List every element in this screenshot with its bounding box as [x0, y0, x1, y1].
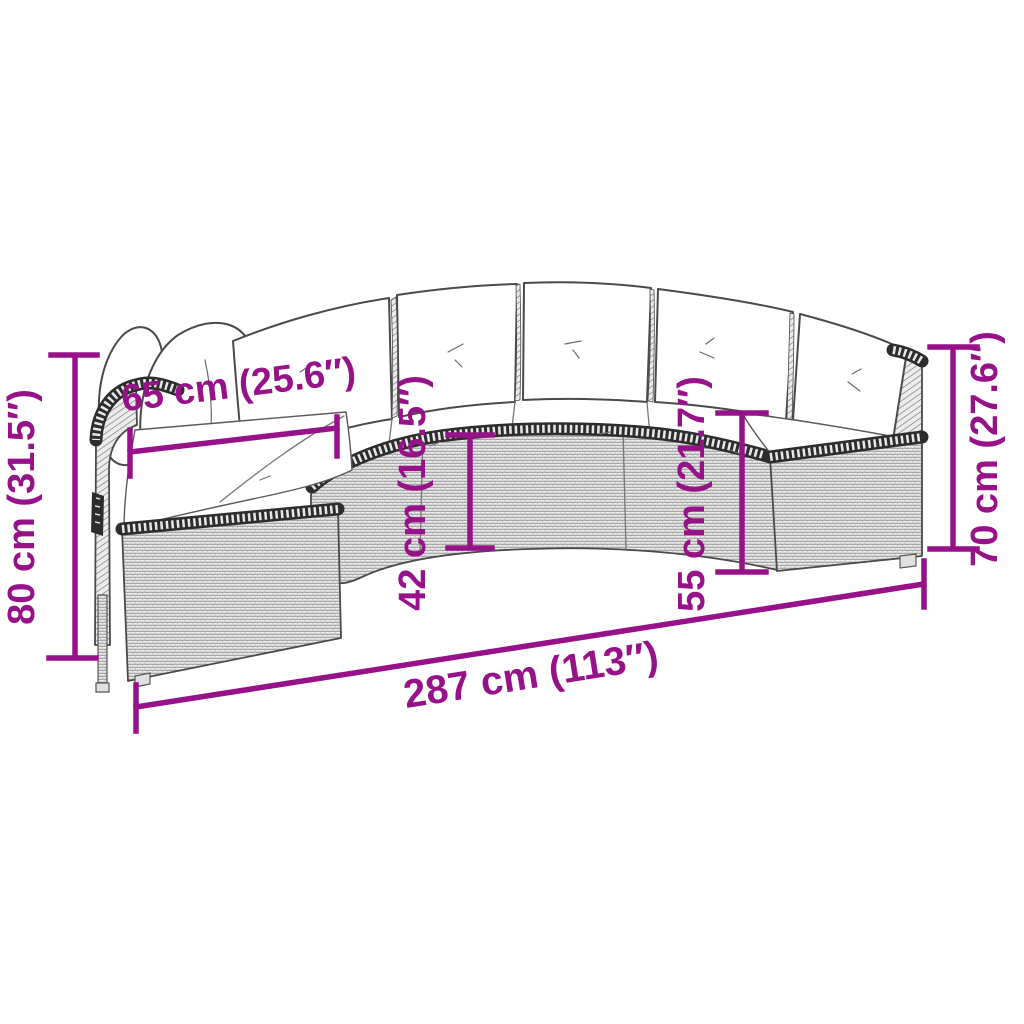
dimension-label-80cm: 80 cm (31.5″) — [1, 389, 43, 625]
sofa-illustration: 80 cm (31.5″) 65 cm (25.6″) 42 cm (16.5″… — [0, 0, 1024, 1024]
dimension-label-55cm: 55 cm (21.7″) — [671, 376, 713, 612]
dimension-label-42cm: 42 cm (16.5″) — [392, 375, 434, 611]
left-leg — [98, 595, 107, 683]
dimension-back-height-right: 70 cm (27.6″) — [930, 331, 1006, 567]
dimension-overall-height-left: 80 cm (31.5″) — [1, 355, 97, 658]
dimension-label-70cm: 70 cm (27.6″) — [964, 331, 1006, 567]
dimension-diagram: 80 cm (31.5″) 65 cm (25.6″) 42 cm (16.5″… — [0, 0, 1024, 1024]
left-base-box — [122, 509, 341, 681]
sofa-drawing — [91, 282, 922, 692]
back-cushion-3 — [523, 282, 651, 402]
